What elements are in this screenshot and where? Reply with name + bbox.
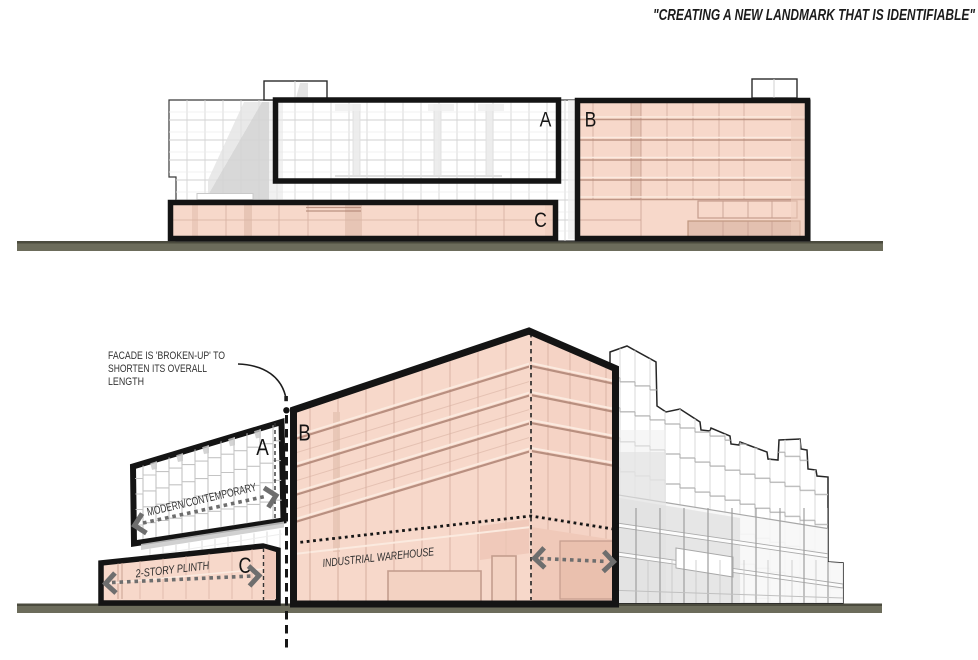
svg-text:A: A [256,435,269,460]
svg-text:LENGTH: LENGTH [108,376,144,388]
svg-text:FACADE IS 'BROKEN-UP' TO: FACADE IS 'BROKEN-UP' TO [108,350,225,362]
svg-text:C: C [534,208,547,232]
svg-text:SHORTEN ITS OVERALL: SHORTEN ITS OVERALL [108,363,207,375]
svg-text:A: A [540,108,553,132]
svg-text:B: B [585,108,597,132]
svg-text:B: B [298,421,311,446]
svg-text:"CREATING A NEW LANDMARK THAT: "CREATING A NEW LANDMARK THAT IS IDENTIF… [653,7,975,24]
